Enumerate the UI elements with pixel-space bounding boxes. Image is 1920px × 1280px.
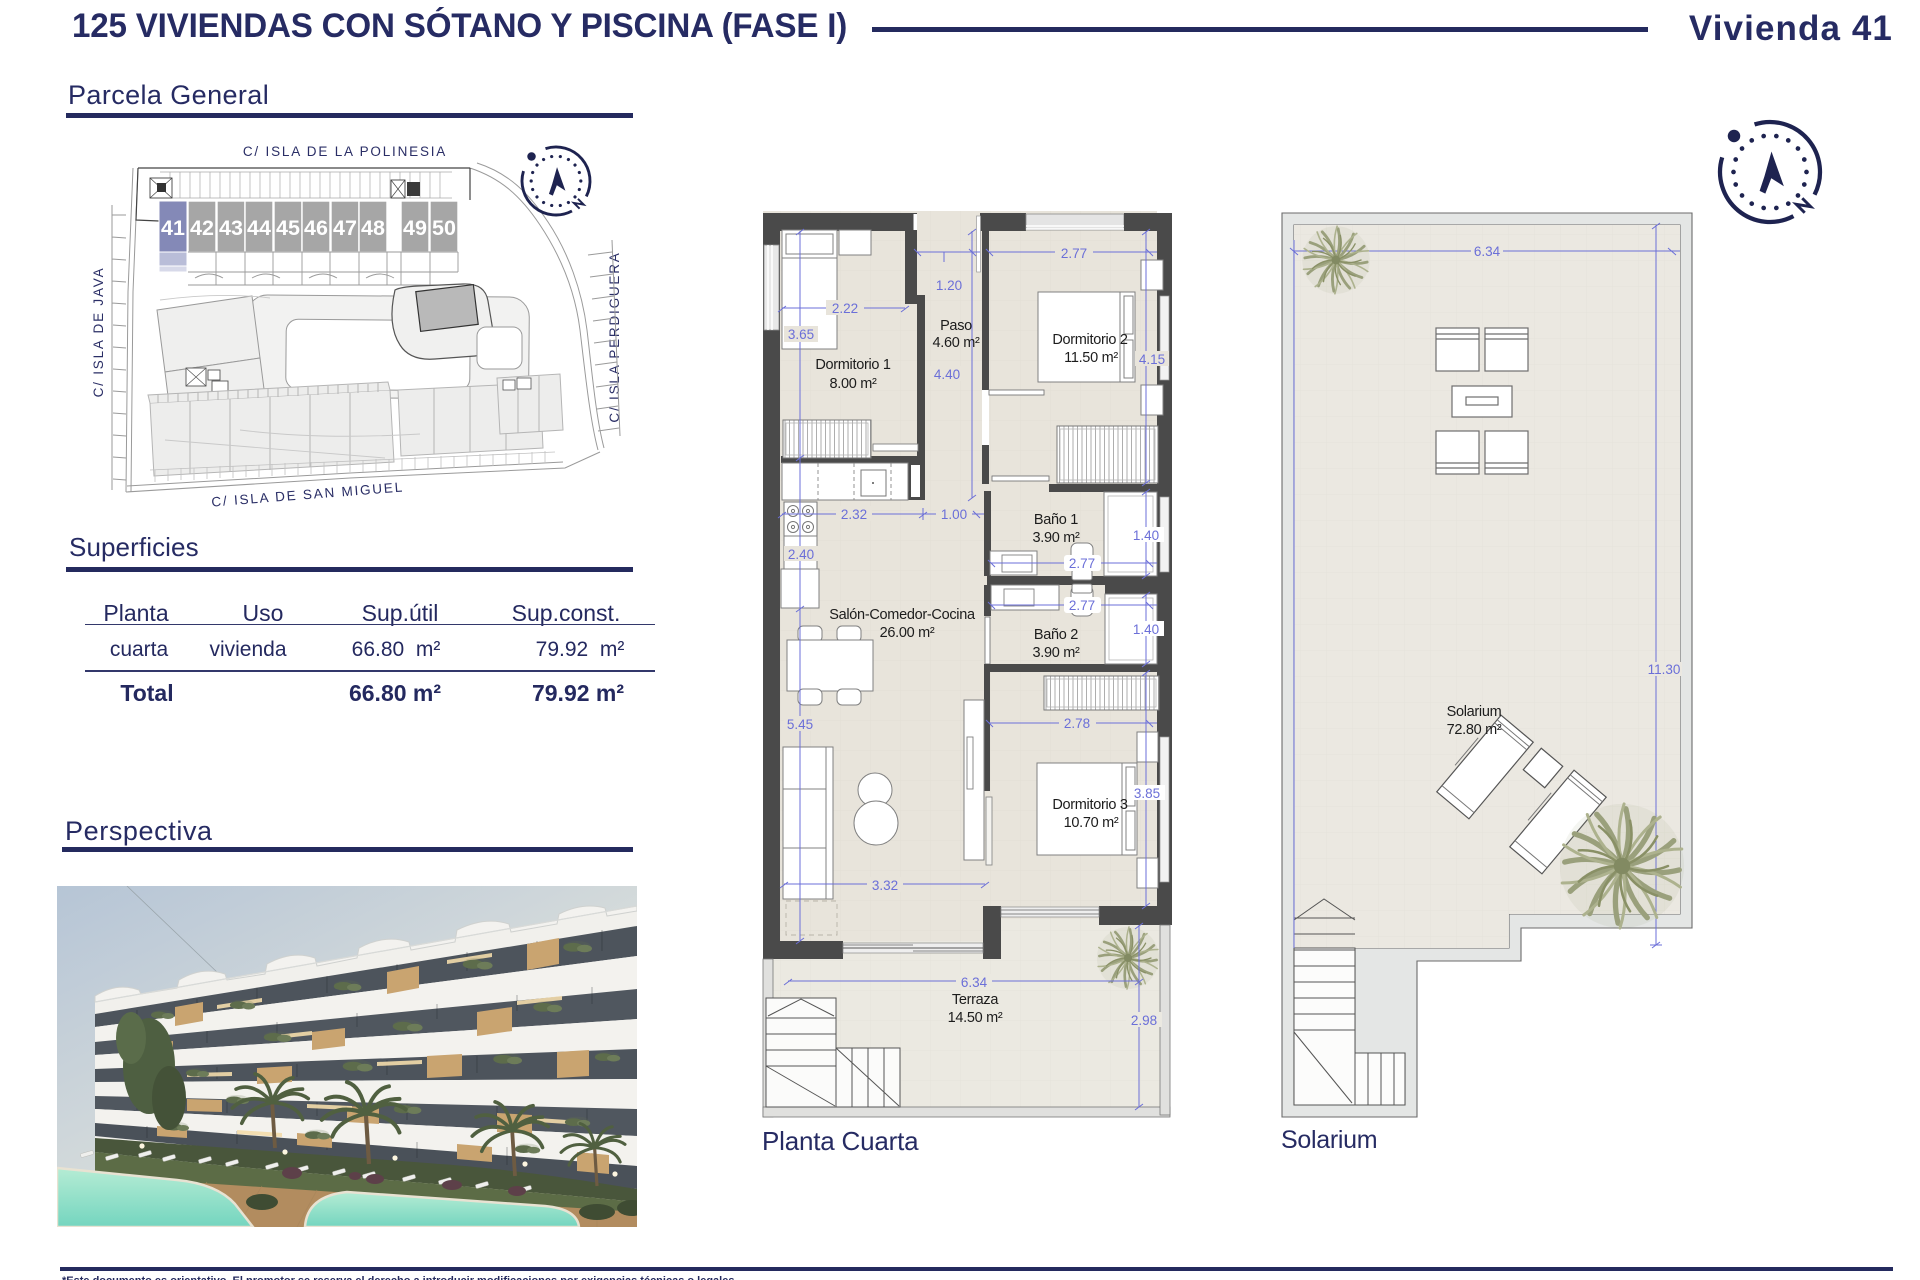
svg-text:6.34: 6.34 xyxy=(1474,244,1501,259)
svg-text:Baño 2: Baño 2 xyxy=(1034,627,1078,643)
svg-text:Dormitorio 1: Dormitorio 1 xyxy=(815,357,891,373)
svg-text:49: 49 xyxy=(403,216,427,240)
svg-text:3.90 m²: 3.90 m² xyxy=(1032,645,1080,661)
svg-text:11.50 m²: 11.50 m² xyxy=(1064,350,1118,366)
svg-text:3.65: 3.65 xyxy=(788,327,814,342)
svg-text:Dormitorio 2: Dormitorio 2 xyxy=(1052,332,1128,348)
svg-text:2.78: 2.78 xyxy=(1064,716,1090,731)
svg-text:Paso: Paso xyxy=(940,318,972,334)
svg-text:10.70 m²: 10.70 m² xyxy=(1064,815,1119,831)
svg-text:2.77: 2.77 xyxy=(1069,598,1095,613)
svg-text:4.15: 4.15 xyxy=(1139,352,1165,367)
svg-text:2.77: 2.77 xyxy=(1069,556,1095,571)
svg-text:2.40: 2.40 xyxy=(788,547,814,562)
svg-text:26.00 m²: 26.00 m² xyxy=(880,625,935,641)
svg-text:3.32: 3.32 xyxy=(872,878,898,893)
svg-text:48: 48 xyxy=(361,216,385,240)
svg-text:Salón-Comedor-Cocina: Salón-Comedor-Cocina xyxy=(829,607,976,623)
svg-text:43: 43 xyxy=(219,216,243,240)
svg-text:45: 45 xyxy=(276,216,300,240)
svg-text:42: 42 xyxy=(190,216,214,240)
svg-text:Solarium: Solarium xyxy=(1447,704,1502,720)
svg-text:Dormitorio 3: Dormitorio 3 xyxy=(1052,797,1128,813)
svg-text:2.77: 2.77 xyxy=(1061,246,1087,261)
svg-text:2.32: 2.32 xyxy=(841,507,867,522)
svg-text:Baño 1: Baño 1 xyxy=(1034,512,1078,528)
svg-text:C/ ISLA DE LA POLINESIA: C/ ISLA DE LA POLINESIA xyxy=(243,144,447,159)
svg-text:72.80 m²: 72.80 m² xyxy=(1447,722,1502,738)
svg-text:1.00: 1.00 xyxy=(941,507,967,522)
svg-text:C/ ISLA DE SAN MIGUEL: C/ ISLA DE SAN MIGUEL xyxy=(211,479,405,509)
svg-text:11.30: 11.30 xyxy=(1648,662,1681,677)
svg-text:6.34: 6.34 xyxy=(961,975,988,990)
svg-text:5.45: 5.45 xyxy=(787,717,813,732)
svg-text:1.20: 1.20 xyxy=(936,278,962,293)
svg-text:44: 44 xyxy=(247,216,271,240)
svg-text:C/ ISLA PERDIGUERA: C/ ISLA PERDIGUERA xyxy=(607,251,622,422)
svg-text:1.40: 1.40 xyxy=(1133,528,1159,543)
svg-text:41: 41 xyxy=(161,216,185,240)
svg-text:Terraza: Terraza xyxy=(952,992,999,1008)
svg-text:50: 50 xyxy=(432,216,456,240)
svg-text:14.50 m²: 14.50 m² xyxy=(948,1010,1003,1026)
svg-text:47: 47 xyxy=(333,216,357,240)
svg-text:4.40: 4.40 xyxy=(934,367,960,382)
svg-text:C/ ISLA DE JAVA: C/ ISLA DE JAVA xyxy=(91,267,106,398)
svg-text:3.85: 3.85 xyxy=(1134,786,1160,801)
svg-text:3.90 m²: 3.90 m² xyxy=(1032,530,1080,546)
svg-text:4.60 m²: 4.60 m² xyxy=(932,335,980,351)
svg-text:8.00 m²: 8.00 m² xyxy=(829,376,877,392)
svg-text:1.40: 1.40 xyxy=(1133,622,1159,637)
svg-text:2.22: 2.22 xyxy=(832,301,858,316)
svg-text:2.98: 2.98 xyxy=(1131,1013,1157,1028)
svg-text:46: 46 xyxy=(304,216,328,240)
